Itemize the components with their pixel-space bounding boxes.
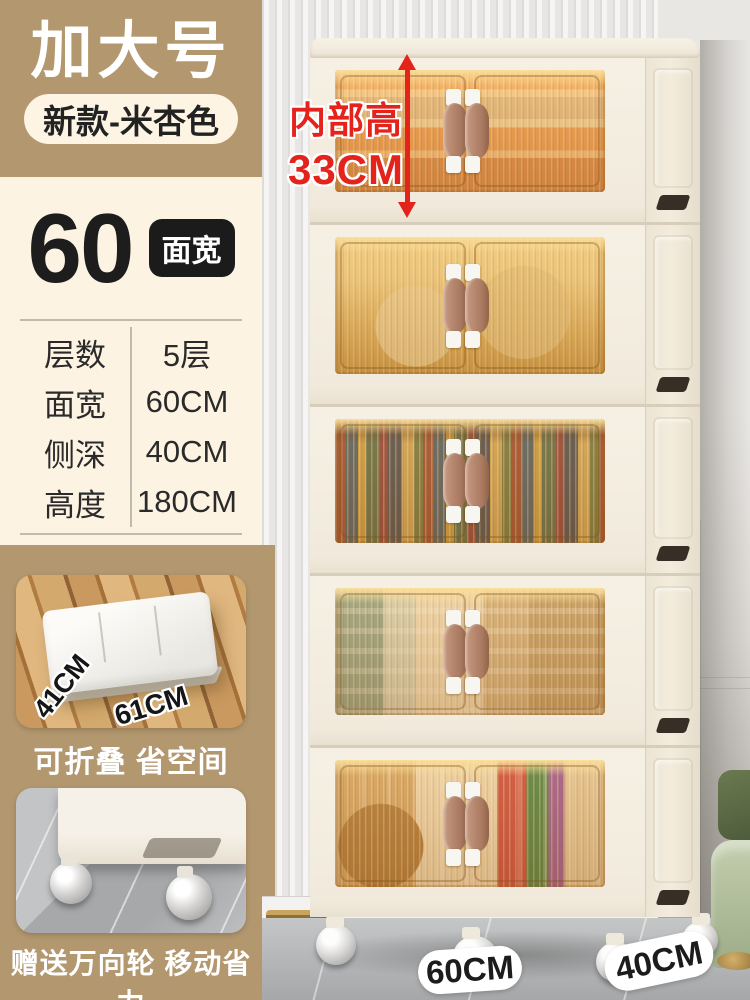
spec-value: 180CM	[132, 484, 242, 520]
leather-strap	[443, 624, 467, 680]
clip-icon	[446, 156, 461, 173]
side-panel-groove	[653, 68, 693, 188]
leather-strap	[465, 453, 489, 509]
leather-strap	[443, 796, 467, 852]
leather-strap	[465, 624, 489, 680]
leather-strap	[465, 796, 489, 852]
clip-icon	[465, 506, 480, 523]
annotation-text: 内部高	[276, 90, 416, 144]
tier-side	[645, 748, 700, 917]
tier-front	[310, 225, 645, 404]
side-panel-groove	[653, 586, 693, 711]
spec-row-depth: 侧深 40CM	[20, 427, 242, 477]
spec-row-tiers: 层数 5层	[20, 327, 242, 377]
leather-strap	[443, 278, 467, 334]
spec-panel: 60 面宽 层数 5层 面宽 60CM 侧深 40CM 高度 180C	[0, 177, 262, 545]
tier-5	[310, 748, 700, 917]
feature-gallery: 41CM 61CM 可折叠 省空间 赠送万向轮 移动省力	[0, 545, 262, 1000]
variant-pill: 新款-米杏色	[24, 94, 238, 144]
spec-value: 40CM	[132, 434, 242, 470]
arrow-down-icon	[398, 202, 416, 218]
caster-wheel-icon	[166, 874, 212, 920]
tier-door-window	[335, 237, 605, 374]
spec-label: 高度	[20, 477, 132, 527]
folded-box-photo: 41CM 61CM	[16, 575, 246, 728]
size-number: 60	[27, 199, 132, 297]
pouf-seat	[711, 840, 750, 968]
pouf-backrest	[718, 770, 750, 840]
caption-wheels: 赠送万向轮 移动省力	[0, 942, 262, 980]
clip-icon	[446, 331, 461, 348]
tier-door-window	[335, 760, 605, 887]
product-photo: 内部高 33CM 60CM 40CM	[262, 0, 750, 1000]
door-handle	[441, 439, 499, 523]
size-callout: 60 面宽	[0, 177, 262, 297]
side-handle-slot	[656, 546, 691, 561]
leather-strap	[443, 453, 467, 509]
product-detail-image: 加大号 新款-米杏色 60 面宽 层数 5层 面宽 60CM 侧深 40CM	[0, 0, 750, 1000]
spec-row-height: 高度 180CM	[20, 477, 242, 527]
tier-door-window	[335, 588, 605, 715]
clip-icon	[465, 331, 480, 348]
tier-front	[310, 407, 645, 573]
spec-label: 面宽	[20, 377, 132, 427]
info-sidebar: 加大号 新款-米杏色 60 面宽 层数 5层 面宽 60CM 侧深 40CM	[0, 0, 262, 1000]
tier-side	[645, 407, 700, 573]
spec-label: 侧深	[20, 427, 132, 477]
base-slot	[142, 838, 223, 858]
caption-foldable: 可折叠 省空间	[0, 737, 262, 775]
leather-strap	[465, 103, 489, 159]
tier-front	[310, 576, 645, 745]
wheels-photo	[16, 788, 246, 933]
caster-wheel-icon	[316, 925, 356, 965]
spec-row-width: 面宽 60CM	[20, 377, 242, 427]
spec-value: 60CM	[132, 384, 242, 420]
cabinet-lid	[310, 38, 700, 58]
side-handle-slot	[656, 718, 691, 733]
clip-icon	[446, 849, 461, 866]
annotation-value: 33CM	[276, 146, 416, 194]
clip-icon	[465, 677, 480, 694]
spec-table: 层数 5层 面宽 60CM 侧深 40CM 高度 180CM	[20, 319, 242, 535]
tier-side	[645, 576, 700, 745]
side-panel-groove	[653, 417, 693, 539]
door-handle	[441, 89, 499, 173]
arrow-line	[405, 64, 410, 208]
tier-front	[310, 748, 645, 917]
tier-side	[645, 58, 700, 222]
badge-title: 加大号	[0, 0, 262, 87]
pouf-gold-base	[717, 952, 750, 970]
size-badge: 加大号 新款-米杏色	[0, 0, 262, 177]
leather-strap	[443, 103, 467, 159]
tier-4	[310, 576, 700, 748]
height-arrow-icon	[398, 54, 416, 218]
size-tag: 面宽	[149, 219, 235, 277]
clip-icon	[446, 506, 461, 523]
tier-side	[645, 225, 700, 404]
side-handle-slot	[656, 890, 691, 905]
tier-2	[310, 225, 700, 407]
spec-label: 层数	[20, 327, 132, 377]
leather-strap	[465, 278, 489, 334]
side-handle-slot	[656, 377, 691, 392]
tier-3	[310, 407, 700, 576]
cabinet-base	[58, 788, 246, 864]
side-handle-slot	[656, 195, 691, 210]
clip-icon	[446, 677, 461, 694]
door-handle	[441, 610, 499, 694]
door-handle	[441, 782, 499, 866]
spec-value: 5层	[132, 330, 242, 375]
clip-icon	[465, 849, 480, 866]
clip-icon	[465, 156, 480, 173]
tier-door-window	[335, 419, 605, 543]
internal-height-annotation: 内部高 33CM	[276, 90, 416, 194]
door-handle	[441, 264, 499, 348]
width-dimension-label: 60CM	[417, 944, 524, 995]
gold-wall-strip	[262, 545, 275, 918]
side-panel-groove	[653, 758, 693, 883]
side-panel-groove	[653, 235, 693, 370]
caster-wheel-icon	[50, 862, 92, 904]
